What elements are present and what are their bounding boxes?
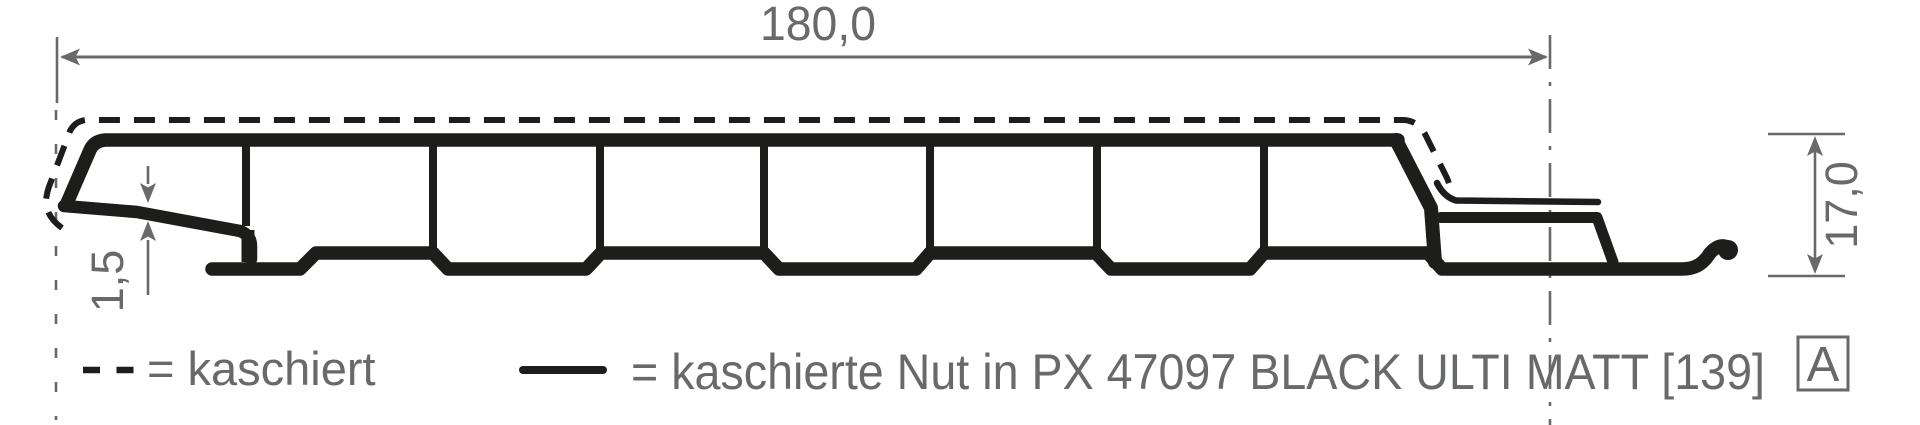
svg-text:= kaschierte Nut in PX 47097 B: = kaschierte Nut in PX 47097 BLACK ULTI …	[631, 344, 1765, 400]
svg-text:= kaschiert: = kaschiert	[147, 342, 376, 395]
svg-text:1,5: 1,5	[82, 250, 133, 313]
svg-text:A: A	[1807, 338, 1840, 392]
svg-text:180,0: 180,0	[760, 0, 876, 51]
svg-text:17,0: 17,0	[1816, 161, 1867, 249]
